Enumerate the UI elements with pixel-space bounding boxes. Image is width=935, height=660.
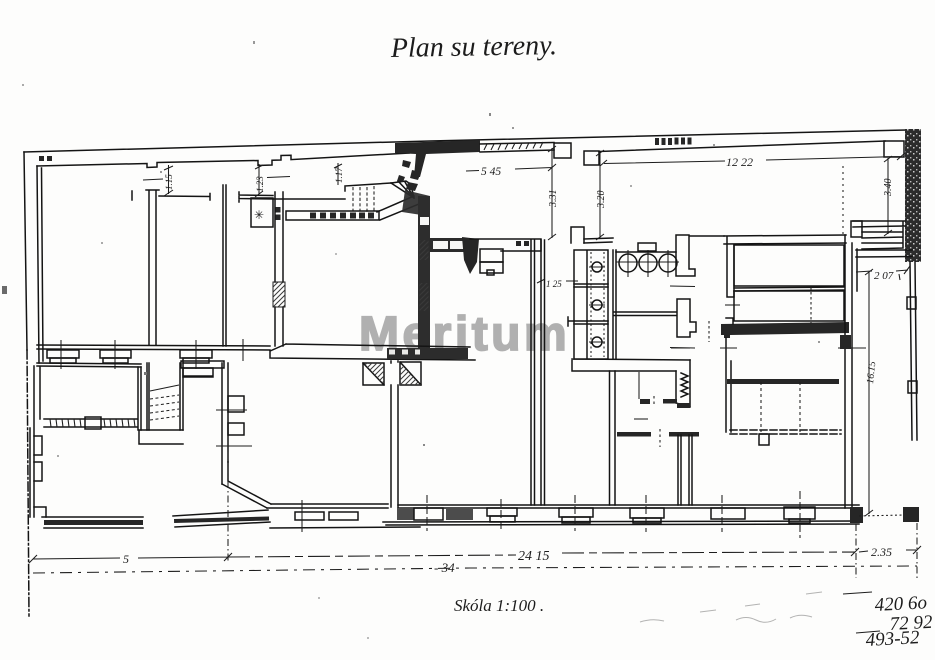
svg-text:493-52: 493-52 bbox=[865, 627, 920, 651]
svg-text:3.20: 3.20 bbox=[596, 191, 607, 210]
svg-text:5: 5 bbox=[123, 552, 129, 566]
svg-text:5 45: 5 45 bbox=[481, 166, 501, 178]
svg-text:1.17: 1.17 bbox=[334, 167, 344, 183]
svg-text:12 22: 12 22 bbox=[726, 155, 753, 169]
svg-text:3.31: 3.31 bbox=[548, 190, 559, 209]
svg-text:✳: ✳ bbox=[254, 208, 264, 222]
svg-text:1.15: 1.15 bbox=[164, 174, 174, 190]
svg-text:16.15: 16.15 bbox=[865, 361, 878, 385]
svg-text:Skóla 1:100 .: Skóla 1:100 . bbox=[454, 596, 544, 615]
svg-text:1 25: 1 25 bbox=[546, 279, 562, 289]
svg-text:Plan su tereny.: Plan su tereny. bbox=[390, 30, 558, 64]
svg-text:24 15: 24 15 bbox=[518, 549, 550, 564]
svg-text:2.35: 2.35 bbox=[871, 545, 892, 559]
svg-text:2 07: 2 07 bbox=[874, 270, 894, 282]
svg-text:- 34: - 34 bbox=[434, 560, 455, 575]
svg-text:1.23: 1.23 bbox=[255, 176, 265, 192]
svg-text:3.40: 3.40 bbox=[883, 179, 894, 198]
